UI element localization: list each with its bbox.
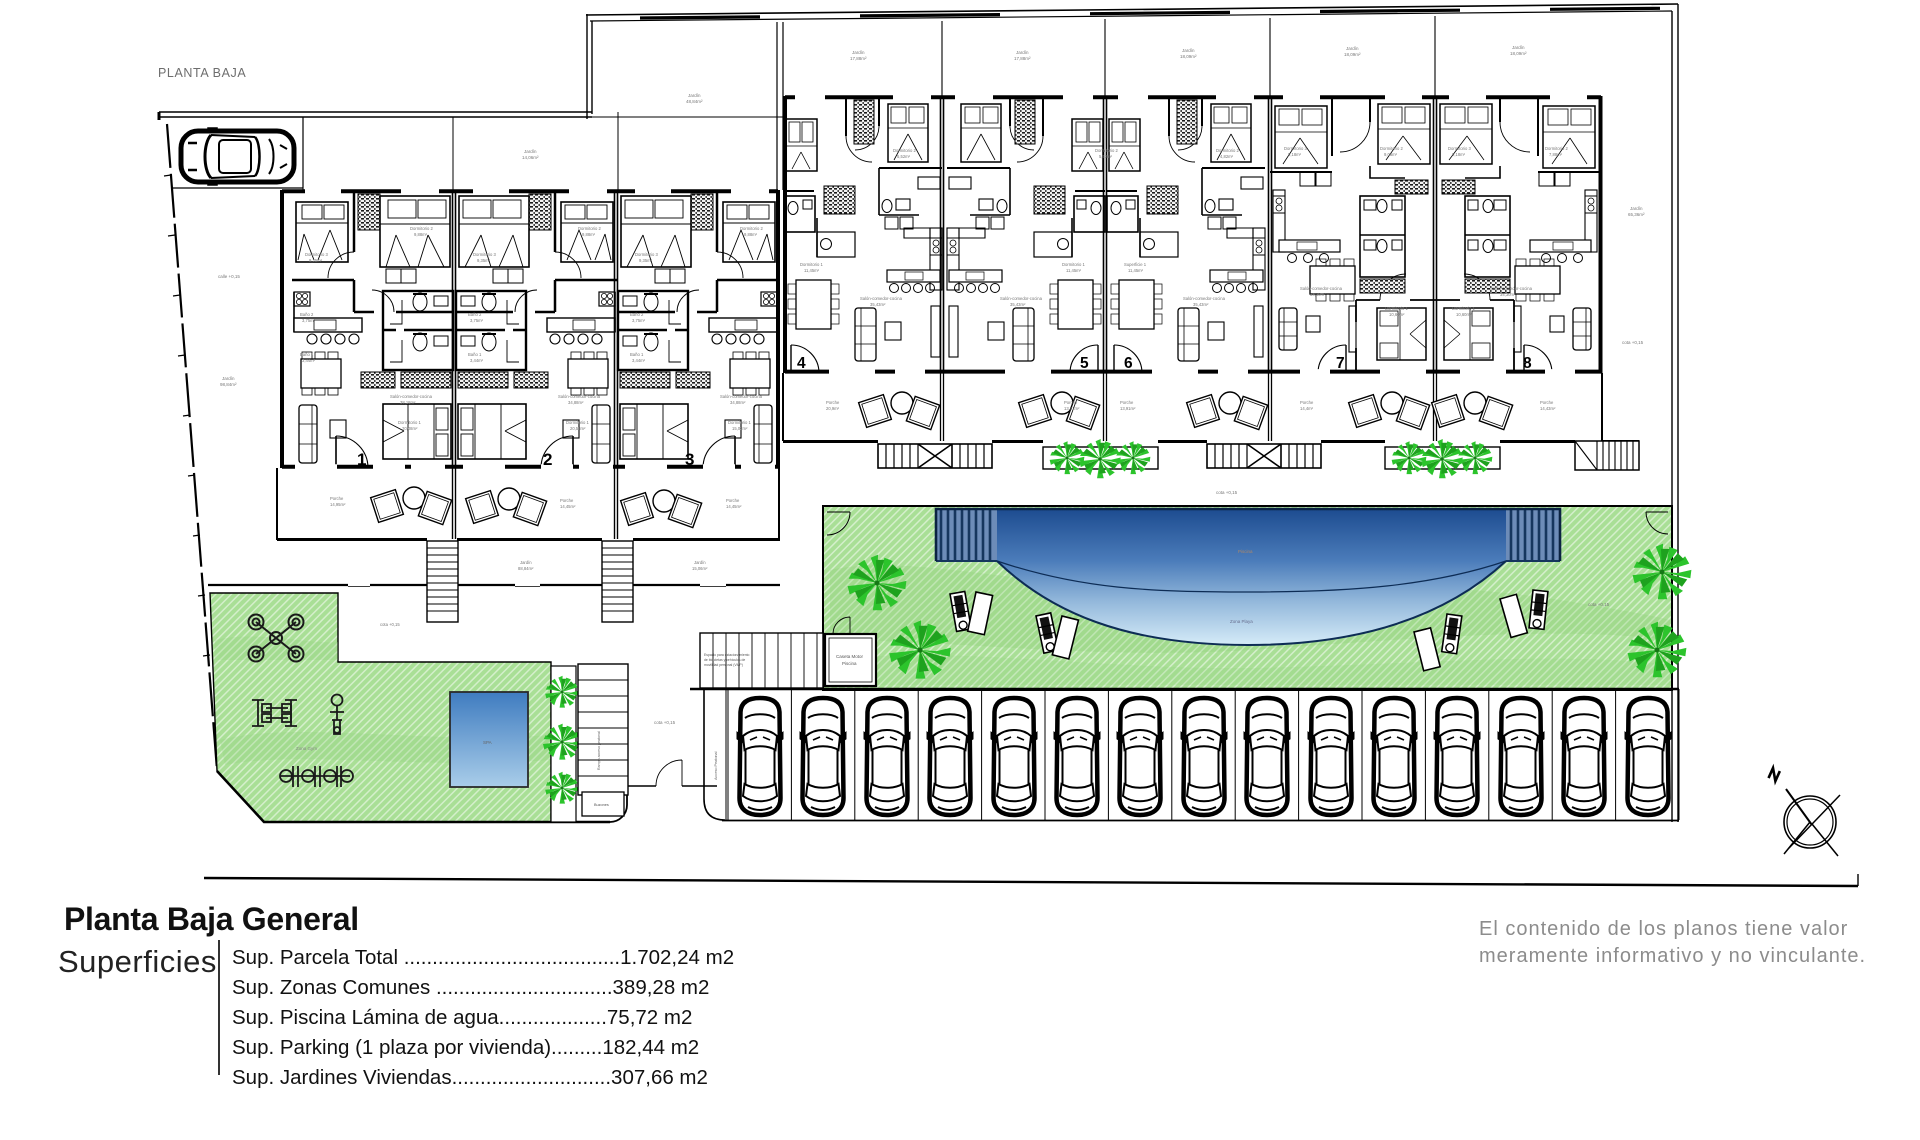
svg-text:Dormitorio 3: Dormitorio 3 xyxy=(635,252,658,257)
svg-text:11,45m²: 11,45m² xyxy=(1128,268,1144,273)
svg-text:3,75m²: 3,75m² xyxy=(632,318,646,323)
svg-text:Jardín: Jardín xyxy=(694,560,706,565)
svg-text:18,09m²: 18,09m² xyxy=(1510,51,1527,56)
svg-text:Jardín: Jardín xyxy=(520,560,532,565)
svg-text:10,60m²: 10,60m² xyxy=(1389,312,1405,317)
svg-text:Sup. Parking (1 plaza por vivi: Sup. Parking (1 plaza por vivienda).....… xyxy=(232,1036,699,1059)
svg-text:Acceso Peatonal: Acceso Peatonal xyxy=(714,751,718,780)
svg-text:4,82m²: 4,82m² xyxy=(1220,154,1234,159)
svg-text:Baño 1: Baño 1 xyxy=(300,352,314,357)
svg-text:14,95m²: 14,95m² xyxy=(330,502,346,507)
svg-text:9,18m²: 9,18m² xyxy=(1288,152,1302,157)
svg-text:7,88m²: 7,88m² xyxy=(1549,152,1563,157)
svg-text:Jardín: Jardín xyxy=(222,376,235,381)
svg-text:34,30m²: 34,30m² xyxy=(1500,292,1516,297)
svg-text:Baño 2: Baño 2 xyxy=(630,312,644,317)
svg-text:4: 4 xyxy=(797,355,806,372)
svg-text:8: 8 xyxy=(1523,355,1532,372)
svg-text:3,44m²: 3,44m² xyxy=(470,358,484,363)
svg-text:13,91m²: 13,91m² xyxy=(1120,406,1136,411)
svg-text:3,75m²: 3,75m² xyxy=(470,318,484,323)
svg-text:de bicicletas y vehículos de: de bicicletas y vehículos de xyxy=(704,658,745,662)
svg-text:Salón-comedor-cocina: Salón-comedor-cocina xyxy=(1000,296,1043,301)
svg-text:calle +0,15: calle +0,15 xyxy=(218,274,240,279)
svg-text:9,18m²: 9,18m² xyxy=(1452,152,1466,157)
svg-text:3,75m²: 3,75m² xyxy=(302,318,316,323)
svg-text:Jardín: Jardín xyxy=(1182,48,1195,53)
svg-text:Dormitorio 2: Dormitorio 2 xyxy=(1545,146,1568,151)
svg-text:Dormitorio 2: Dormitorio 2 xyxy=(578,226,601,231)
svg-text:3: 3 xyxy=(685,450,694,469)
svg-text:5,52m²: 5,52m² xyxy=(1099,154,1113,159)
svg-text:Jardín: Jardín xyxy=(1630,206,1643,211)
svg-text:Jardín: Jardín xyxy=(688,93,701,98)
svg-text:Dormitorio 2: Dormitorio 2 xyxy=(740,226,763,231)
svg-text:Dormitorio 1: Dormitorio 1 xyxy=(1062,262,1085,267)
svg-text:34,88m²: 34,88m² xyxy=(568,400,584,405)
svg-text:Dormitorio 2: Dormitorio 2 xyxy=(1216,148,1239,153)
svg-text:9,88m²: 9,88m² xyxy=(414,232,428,237)
svg-text:20,9m²: 20,9m² xyxy=(826,406,840,411)
svg-text:Baño 2: Baño 2 xyxy=(300,312,314,317)
svg-text:Dormitorio 3: Dormitorio 3 xyxy=(1448,146,1471,151)
svg-text:Salón-comedor-cocina: Salón-comedor-cocina xyxy=(1183,296,1226,301)
svg-text:5,52m²: 5,52m² xyxy=(897,154,911,159)
svg-text:Baño 1: Baño 1 xyxy=(630,352,644,357)
svg-text:13,91m²: 13,91m² xyxy=(1064,406,1080,411)
svg-text:movilidad personal (VMP): movilidad personal (VMP) xyxy=(704,663,743,667)
svg-text:17,88m²: 17,88m² xyxy=(1014,56,1031,61)
svg-text:Rampa acceso peatonal: Rampa acceso peatonal xyxy=(597,731,601,770)
svg-text:Porche: Porche xyxy=(826,400,840,405)
svg-text:3,44m²: 3,44m² xyxy=(302,358,316,363)
svg-text:Dormitorio 2: Dormitorio 2 xyxy=(1380,146,1403,151)
svg-text:cota +0,15: cota +0,15 xyxy=(1588,602,1610,607)
svg-text:Dormitorio 1: Dormitorio 1 xyxy=(398,420,421,425)
svg-text:Salón-comedor-cocina: Salón-comedor-cocina xyxy=(390,394,433,399)
svg-text:2: 2 xyxy=(543,450,552,469)
svg-text:10,60m²: 10,60m² xyxy=(1456,312,1472,317)
svg-text:9,35m²: 9,35m² xyxy=(639,258,653,263)
svg-text:9,88m²: 9,88m² xyxy=(744,232,758,237)
svg-text:Dormitorio 2: Dormitorio 2 xyxy=(410,226,433,231)
svg-text:18,09m²: 18,09m² xyxy=(1180,54,1197,59)
svg-text:9,35m²: 9,35m² xyxy=(477,258,491,263)
svg-text:Dormitorio 2: Dormitorio 2 xyxy=(893,148,916,153)
svg-text:cota +0,15: cota +0,15 xyxy=(1216,490,1238,495)
svg-text:6: 6 xyxy=(1124,355,1133,372)
svg-text:Planta Baja General: Planta Baja General xyxy=(64,901,359,937)
svg-text:14,45m²: 14,45m² xyxy=(560,504,576,509)
svg-text:35,43m²: 35,43m² xyxy=(1010,302,1026,307)
svg-text:Porche: Porche xyxy=(560,498,574,503)
svg-text:Dormitorio 3: Dormitorio 3 xyxy=(1284,146,1307,151)
svg-text:20,58m²: 20,58m² xyxy=(570,426,586,431)
svg-text:35,43m²: 35,43m² xyxy=(870,302,886,307)
svg-text:Dormitorio 1: Dormitorio 1 xyxy=(728,420,751,425)
svg-text:El contenido de los planos: El contenido de los planos tiene valor xyxy=(1479,918,1848,940)
svg-text:PLANTA BAJA: PLANTA BAJA xyxy=(158,66,246,80)
svg-text:Baño 2: Baño 2 xyxy=(468,312,482,317)
svg-text:Jardín: Jardín xyxy=(852,50,865,55)
svg-text:14,45m²: 14,45m² xyxy=(726,504,742,509)
svg-text:cota +0,15: cota +0,15 xyxy=(654,720,676,725)
svg-text:cota +0,15: cota +0,15 xyxy=(380,622,400,627)
svg-text:Superficies: Superficies xyxy=(58,944,217,979)
svg-text:20,08m²: 20,08m² xyxy=(402,426,418,431)
svg-text:5: 5 xyxy=(1080,355,1089,372)
svg-text:Jardín: Jardín xyxy=(1512,45,1525,50)
svg-text:Dormitorio 1: Dormitorio 1 xyxy=(566,420,589,425)
svg-text:Baño 1: Baño 1 xyxy=(468,352,482,357)
svg-text:Piscina: Piscina xyxy=(842,661,857,666)
svg-text:Salón-comedor-cocina: Salón-comedor-cocina xyxy=(1300,286,1343,291)
svg-text:18,09m²: 18,09m² xyxy=(1344,52,1361,57)
svg-text:Zona Playa: Zona Playa xyxy=(1230,619,1253,624)
svg-text:9,08m²: 9,08m² xyxy=(1384,152,1398,157)
svg-text:1: 1 xyxy=(357,450,366,469)
svg-text:Jardín: Jardín xyxy=(1346,46,1359,51)
svg-text:14,4m²: 14,4m² xyxy=(1300,406,1314,411)
svg-text:15,06m²: 15,06m² xyxy=(692,566,708,571)
svg-text:Sup. Zonas Comunes ...........: Sup. Zonas Comunes .....................… xyxy=(232,976,709,999)
svg-text:Espacio para estacionamiento: Espacio para estacionamiento xyxy=(704,653,750,657)
svg-text:meramente informativo y no: meramente informativo y no vinculante. xyxy=(1479,945,1866,967)
svg-text:9,35m²: 9,35m² xyxy=(309,258,323,263)
svg-text:15,02m²: 15,02m² xyxy=(732,426,748,431)
svg-text:34,88m²: 34,88m² xyxy=(730,400,746,405)
svg-text:3,44m²: 3,44m² xyxy=(632,358,646,363)
svg-text:SPA: SPA xyxy=(483,740,492,745)
svg-text:Sup. Parcela Total ...........: Sup. Parcela Total .....................… xyxy=(232,946,734,969)
svg-text:Zona Gym: Zona Gym xyxy=(296,746,317,751)
svg-text:Salón-comedor-cocina: Salón-comedor-cocina xyxy=(720,394,763,399)
svg-text:35,43m²: 35,43m² xyxy=(1193,302,1209,307)
svg-text:Piscina: Piscina xyxy=(1238,549,1253,554)
svg-text:Salón-comedor-cocina: Salón-comedor-cocina xyxy=(558,394,601,399)
svg-text:88,84m²: 88,84m² xyxy=(518,566,534,571)
svg-text:9,88m²: 9,88m² xyxy=(582,232,596,237)
svg-text:7: 7 xyxy=(1336,355,1345,372)
svg-text:34,30m²: 34,30m² xyxy=(1310,292,1326,297)
svg-text:Sup. Jardines Viviendas.......: Sup. Jardines Viviendas.................… xyxy=(232,1066,708,1089)
svg-text:Salón-comedor-cocina: Salón-comedor-cocina xyxy=(1490,286,1533,291)
svg-text:Dormitorio 3: Dormitorio 3 xyxy=(473,252,496,257)
svg-text:Porche: Porche xyxy=(1540,400,1554,405)
svg-text:Jardín: Jardín xyxy=(524,149,537,154)
svg-text:14,06m²: 14,06m² xyxy=(522,155,539,160)
svg-text:Porche: Porche xyxy=(330,496,344,501)
svg-text:Jardín: Jardín xyxy=(1016,50,1029,55)
svg-text:Porche: Porche xyxy=(1064,400,1078,405)
svg-text:11,45m²: 11,45m² xyxy=(1066,268,1082,273)
svg-text:Superficie 1: Superficie 1 xyxy=(1124,262,1147,267)
svg-text:Salón-comedor-cocina: Salón-comedor-cocina xyxy=(860,296,903,301)
svg-text:14,43m²: 14,43m² xyxy=(1540,406,1556,411)
svg-text:Dormitorio 1: Dormitorio 1 xyxy=(1452,306,1475,311)
svg-text:38,18m²: 38,18m² xyxy=(400,400,416,405)
svg-text:11,45m²: 11,45m² xyxy=(804,268,820,273)
svg-text:Dormitorio 2: Dormitorio 2 xyxy=(1095,148,1118,153)
svg-text:Porche: Porche xyxy=(1120,400,1134,405)
svg-text:cota +0,15: cota +0,15 xyxy=(1622,340,1644,345)
svg-text:Dormitorio 3: Dormitorio 3 xyxy=(305,252,328,257)
svg-text:Porche: Porche xyxy=(1300,400,1314,405)
svg-text:98,84m²: 98,84m² xyxy=(220,382,237,387)
svg-text:48,84m²: 48,84m² xyxy=(686,99,703,104)
svg-text:65,36m²: 65,36m² xyxy=(1628,212,1645,217)
svg-text:Porche: Porche xyxy=(726,498,740,503)
svg-text:Caseta Motor: Caseta Motor xyxy=(836,654,864,659)
svg-text:Dormitorio 1: Dormitorio 1 xyxy=(1385,306,1408,311)
svg-text:17,88m²: 17,88m² xyxy=(850,56,867,61)
svg-text:Sup. Piscina Lámina de agua...: Sup. Piscina Lámina de agua.............… xyxy=(232,1006,692,1029)
svg-text:Dormitorio 1: Dormitorio 1 xyxy=(800,262,823,267)
svg-text:Buzones: Buzones xyxy=(594,803,609,807)
